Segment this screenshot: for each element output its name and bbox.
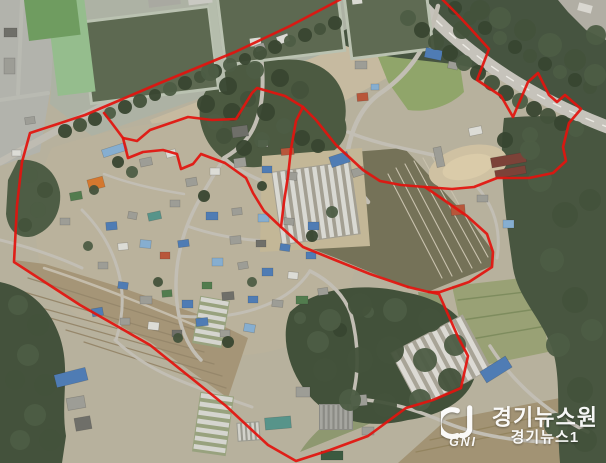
building-roof (212, 258, 223, 266)
tree (83, 241, 93, 251)
tree (442, 45, 458, 61)
building-roof (118, 243, 129, 251)
building-roof (182, 300, 193, 308)
tree (493, 31, 507, 45)
tree (294, 312, 306, 324)
building-roof (262, 166, 272, 173)
tree (118, 100, 132, 114)
tree (73, 118, 87, 132)
tree (311, 139, 325, 153)
tree (508, 40, 522, 54)
tree (568, 121, 584, 137)
tree (562, 287, 588, 313)
tree (89, 185, 99, 195)
building-roof (120, 318, 130, 325)
tree (37, 182, 53, 198)
tree (24, 404, 46, 426)
tree (17, 344, 39, 366)
building-roof (231, 125, 248, 138)
tree (456, 55, 472, 71)
tree (376, 336, 404, 364)
tree (219, 77, 237, 95)
tree (307, 331, 329, 353)
building-roof (296, 387, 310, 397)
tree (254, 132, 270, 148)
tree (313, 358, 337, 382)
tree (257, 103, 275, 121)
building-roof (503, 220, 514, 228)
tree (498, 85, 514, 101)
building-roof (162, 290, 173, 298)
tree (222, 336, 234, 348)
building-roof (4, 28, 17, 37)
building-roof (308, 222, 319, 230)
tree (153, 277, 163, 287)
tree (478, 21, 492, 35)
tree (526, 101, 542, 117)
building-roof (288, 272, 299, 280)
building-roof (12, 150, 21, 156)
greenhouse-rows (236, 421, 260, 442)
tree (126, 166, 138, 178)
building-roof (25, 116, 36, 124)
tree (373, 393, 397, 417)
tree (552, 202, 578, 228)
building-roof (272, 300, 284, 308)
tree (207, 114, 223, 130)
tree (247, 277, 257, 287)
tree (30, 202, 46, 218)
tree (538, 57, 552, 71)
tree (294, 130, 310, 146)
tree (58, 124, 72, 138)
warehouse-ribbed-strip (330, 405, 333, 429)
tree (348, 293, 372, 317)
building-roof (98, 262, 108, 269)
tree (400, 10, 416, 26)
tree (268, 40, 282, 54)
building-roof (265, 416, 292, 430)
tree (5, 370, 25, 390)
tree (18, 218, 32, 232)
building-roof (280, 243, 291, 251)
tree (178, 76, 192, 90)
tree (414, 22, 430, 38)
tree (271, 69, 289, 87)
tree (253, 46, 267, 60)
building-roof (237, 261, 248, 270)
building-roof (140, 296, 152, 304)
tree (133, 94, 147, 108)
tree (568, 73, 582, 87)
tree (540, 108, 556, 124)
building-roof (74, 416, 92, 432)
tree (246, 61, 264, 79)
building-roof (160, 252, 170, 259)
tree (523, 49, 537, 63)
building-roof (106, 222, 118, 231)
tree (223, 58, 237, 72)
tree (470, 0, 490, 20)
tree (314, 23, 326, 35)
tree (339, 389, 361, 411)
tree (328, 16, 342, 30)
aerial-map: GNI 경기뉴스원 경기뉴스1 (0, 0, 606, 463)
tree (276, 118, 292, 134)
warehouse-ribbed-strip (320, 405, 323, 429)
satellite-imagery (0, 0, 606, 463)
tree (538, 33, 562, 57)
tree (489, 7, 511, 29)
tree (34, 374, 56, 396)
tree (413, 348, 437, 372)
building-roof (296, 296, 308, 304)
building-roof (4, 58, 15, 74)
tree (347, 347, 373, 373)
building-roof (206, 212, 218, 220)
building-roof (222, 291, 235, 300)
building-roof (371, 84, 379, 90)
building-roof (140, 240, 152, 249)
building-roof (233, 157, 246, 168)
tree (198, 190, 210, 202)
building-roof (118, 281, 129, 289)
building-roof (69, 191, 82, 201)
tree (584, 64, 606, 86)
tree (173, 333, 183, 343)
building-roof (230, 236, 242, 245)
tree (418, 308, 442, 332)
tree (298, 28, 312, 42)
tree (546, 333, 570, 357)
tree (544, 413, 568, 437)
warehouse-ribbed-strip (325, 405, 328, 429)
building-roof (170, 200, 180, 207)
warehouse-ribbed-strip (339, 405, 342, 429)
tree (22, 167, 38, 183)
tree (540, 248, 564, 272)
tree (383, 298, 407, 322)
tree (306, 230, 318, 242)
tree (528, 168, 552, 192)
building-roof (220, 330, 230, 337)
warehouse-ribbed-strip (335, 405, 338, 429)
tree (497, 132, 513, 148)
building-roof (127, 211, 137, 219)
tree (284, 35, 296, 47)
building-roof (185, 177, 197, 187)
building-roof (355, 61, 367, 69)
tree (567, 377, 593, 403)
building-roof (60, 218, 70, 225)
tree (257, 181, 267, 191)
tree (39, 429, 61, 451)
tree (564, 49, 586, 71)
building-roof (477, 195, 488, 202)
tree (428, 34, 444, 50)
tree (112, 156, 124, 168)
building-roof (202, 282, 212, 289)
tree (27, 314, 49, 336)
building-roof (284, 218, 295, 226)
tree (236, 140, 252, 156)
tree (216, 128, 232, 144)
building-roof (318, 287, 329, 295)
tree (453, 21, 471, 39)
tree (291, 81, 309, 99)
tree (163, 82, 177, 96)
tree (326, 206, 338, 218)
building-roof (357, 93, 369, 102)
building-roof (243, 323, 255, 333)
tree (197, 95, 215, 113)
building-roof (178, 239, 190, 247)
building-roof (248, 296, 258, 303)
building-roof (196, 317, 209, 326)
tree (573, 428, 597, 452)
tree (514, 19, 536, 41)
tree (522, 127, 538, 143)
building-roof (262, 268, 273, 276)
tree (319, 309, 341, 331)
tree (586, 25, 606, 45)
tree (409, 389, 431, 411)
building-roof (232, 207, 243, 215)
tree (581, 319, 603, 341)
sports-field (81, 7, 218, 104)
tree (8, 295, 28, 315)
tree (149, 89, 161, 101)
tree (10, 430, 30, 450)
building-roof (148, 321, 160, 330)
building-roof (210, 168, 220, 175)
building-roof (256, 240, 266, 247)
sports-field (23, 0, 80, 41)
tree (579, 189, 601, 211)
tree (553, 65, 567, 79)
